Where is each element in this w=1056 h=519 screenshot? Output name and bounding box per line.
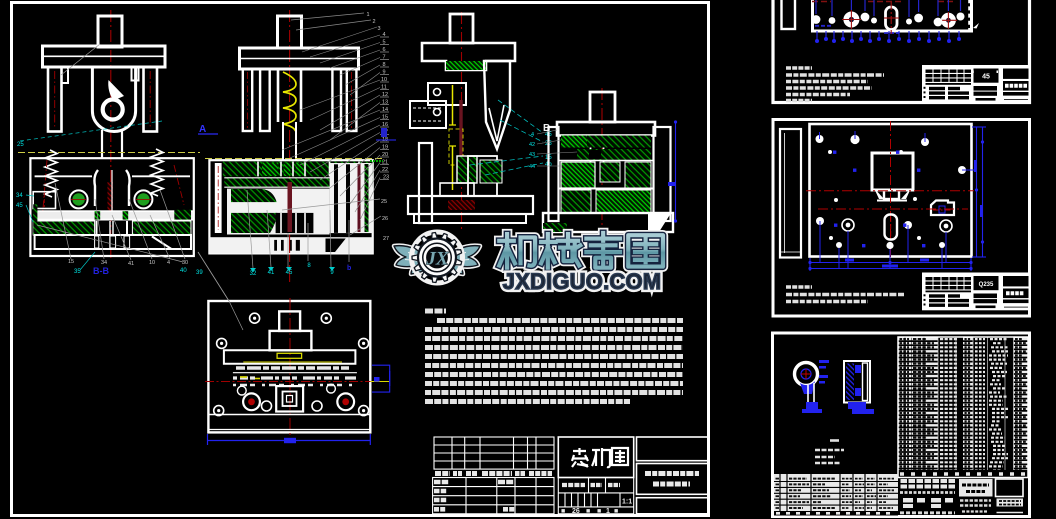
- svg-text:45: 45: [16, 203, 23, 209]
- svg-text:Q235: Q235: [979, 282, 994, 288]
- svg-text:1: 1: [606, 508, 610, 515]
- svg-text:25: 25: [17, 142, 24, 148]
- svg-text:42: 42: [529, 142, 535, 148]
- svg-text:■: ■: [614, 508, 618, 515]
- svg-text:26: 26: [382, 216, 388, 222]
- svg-text:41: 41: [128, 261, 134, 267]
- svg-text:4: 4: [531, 132, 534, 138]
- svg-text:3: 3: [377, 26, 380, 32]
- svg-text:10: 10: [149, 260, 155, 266]
- svg-text:JX: JX: [425, 249, 450, 270]
- svg-text:45: 45: [982, 74, 990, 81]
- svg-text:■: ■: [561, 508, 565, 515]
- svg-text:39: 39: [196, 270, 203, 276]
- svg-text:15: 15: [68, 259, 74, 265]
- svg-text:45: 45: [286, 270, 293, 276]
- svg-text:2: 2: [372, 19, 375, 25]
- svg-text:26: 26: [572, 508, 580, 515]
- svg-text:40: 40: [180, 268, 187, 274]
- svg-text:■: ■: [586, 508, 590, 515]
- svg-text:44: 44: [529, 164, 535, 170]
- svg-text:4: 4: [167, 260, 170, 266]
- svg-text:B-B: B-B: [93, 266, 109, 276]
- svg-text:1: 1: [366, 12, 369, 18]
- svg-text:b: b: [347, 265, 351, 272]
- svg-text:41: 41: [268, 270, 275, 276]
- svg-text:34: 34: [16, 193, 23, 199]
- svg-text:■: ■: [597, 508, 601, 515]
- svg-text:25: 25: [381, 199, 387, 205]
- svg-text:32: 32: [250, 271, 257, 277]
- svg-text:JXDIGUO.COM: JXDIGUO.COM: [503, 269, 662, 294]
- svg-text:30: 30: [182, 260, 188, 266]
- svg-text:27: 27: [383, 236, 389, 242]
- svg-text:43: 43: [529, 152, 535, 158]
- svg-text:1:1: 1:1: [622, 499, 632, 506]
